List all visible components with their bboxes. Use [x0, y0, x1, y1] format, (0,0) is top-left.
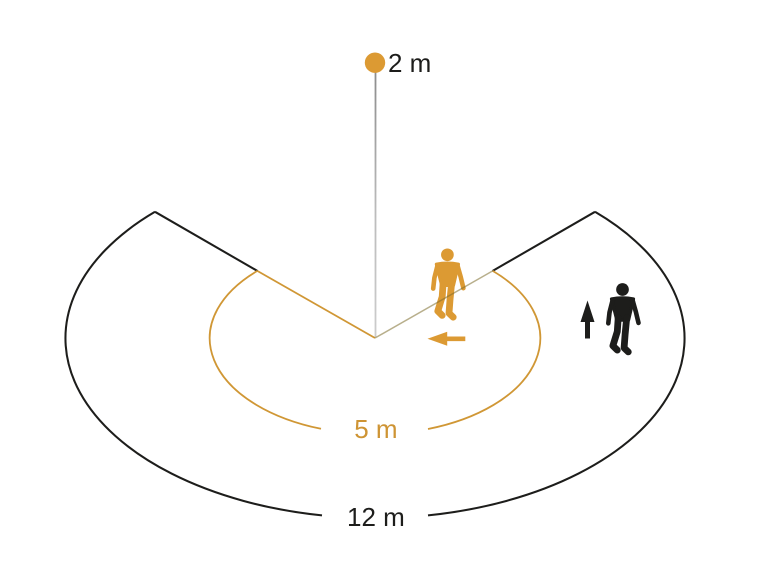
svg-text:12 m: 12 m — [347, 502, 405, 532]
svg-text:5 m: 5 m — [354, 414, 397, 444]
svg-text:2 m: 2 m — [388, 48, 431, 78]
